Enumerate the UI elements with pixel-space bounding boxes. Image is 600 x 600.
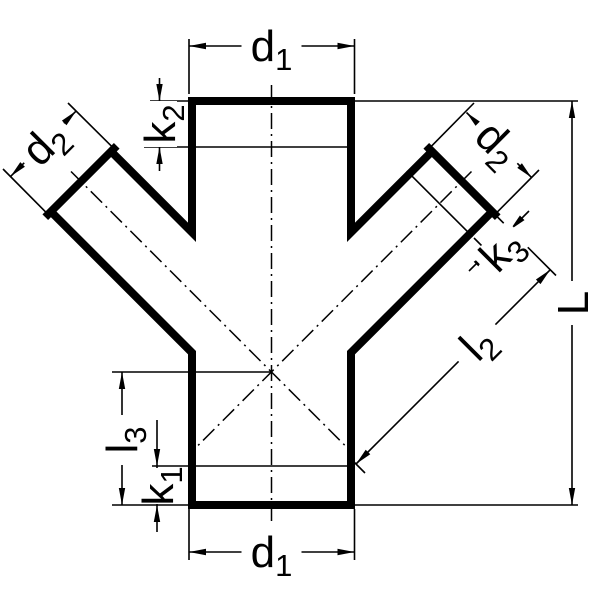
d2-left-extension-upper [68,103,114,149]
k1-arrow-top [154,449,160,466]
upper-right-wall [351,101,432,232]
L-arrow-top [569,101,575,118]
label-l2: l2 [442,308,518,384]
d1-bottom-arrow-right [338,549,355,555]
d2-right-extension-lower [495,170,539,214]
label-d2-right: d2 [456,106,534,184]
pipe-fitting-technical-drawing: d1 d1 d2 d2 k2 k3 L l2 [0,0,600,600]
d1-top-arrow-right [338,43,355,49]
label-d1-top: d1 [242,22,302,77]
l3-arrow-top [119,372,125,389]
d1-bottom-arrow-left [189,549,206,555]
k2-arrow-top [156,84,162,101]
label-d1-bottom: d1 [242,528,302,583]
k1-arrow-bottom [154,505,160,522]
centerline-left-branch-axis [71,172,348,449]
label-l3: l3 [98,415,153,465]
centerline-right-branch-axis [195,172,472,449]
d2-left-extension-lower [3,169,48,214]
d2-right-extension-upper [429,103,474,149]
l3-arrow-bottom [119,488,125,505]
label-k1: k1 [134,466,189,505]
label-k2: k2 [136,101,191,147]
drawing-canvas: d1 d1 d2 d2 k2 k3 L l2 [0,0,600,600]
k2-arrow-bottom [156,147,162,164]
dimension-labels: d1 d1 d2 d2 k2 k3 L l2 [7,22,598,583]
label-d2-left: d2 [7,106,85,184]
label-L-text: L [549,291,598,315]
label-L: L [549,281,598,325]
L-arrow-bottom [569,488,575,505]
l2-dimension-line [356,270,550,464]
d1-top-arrow-left [189,43,206,49]
